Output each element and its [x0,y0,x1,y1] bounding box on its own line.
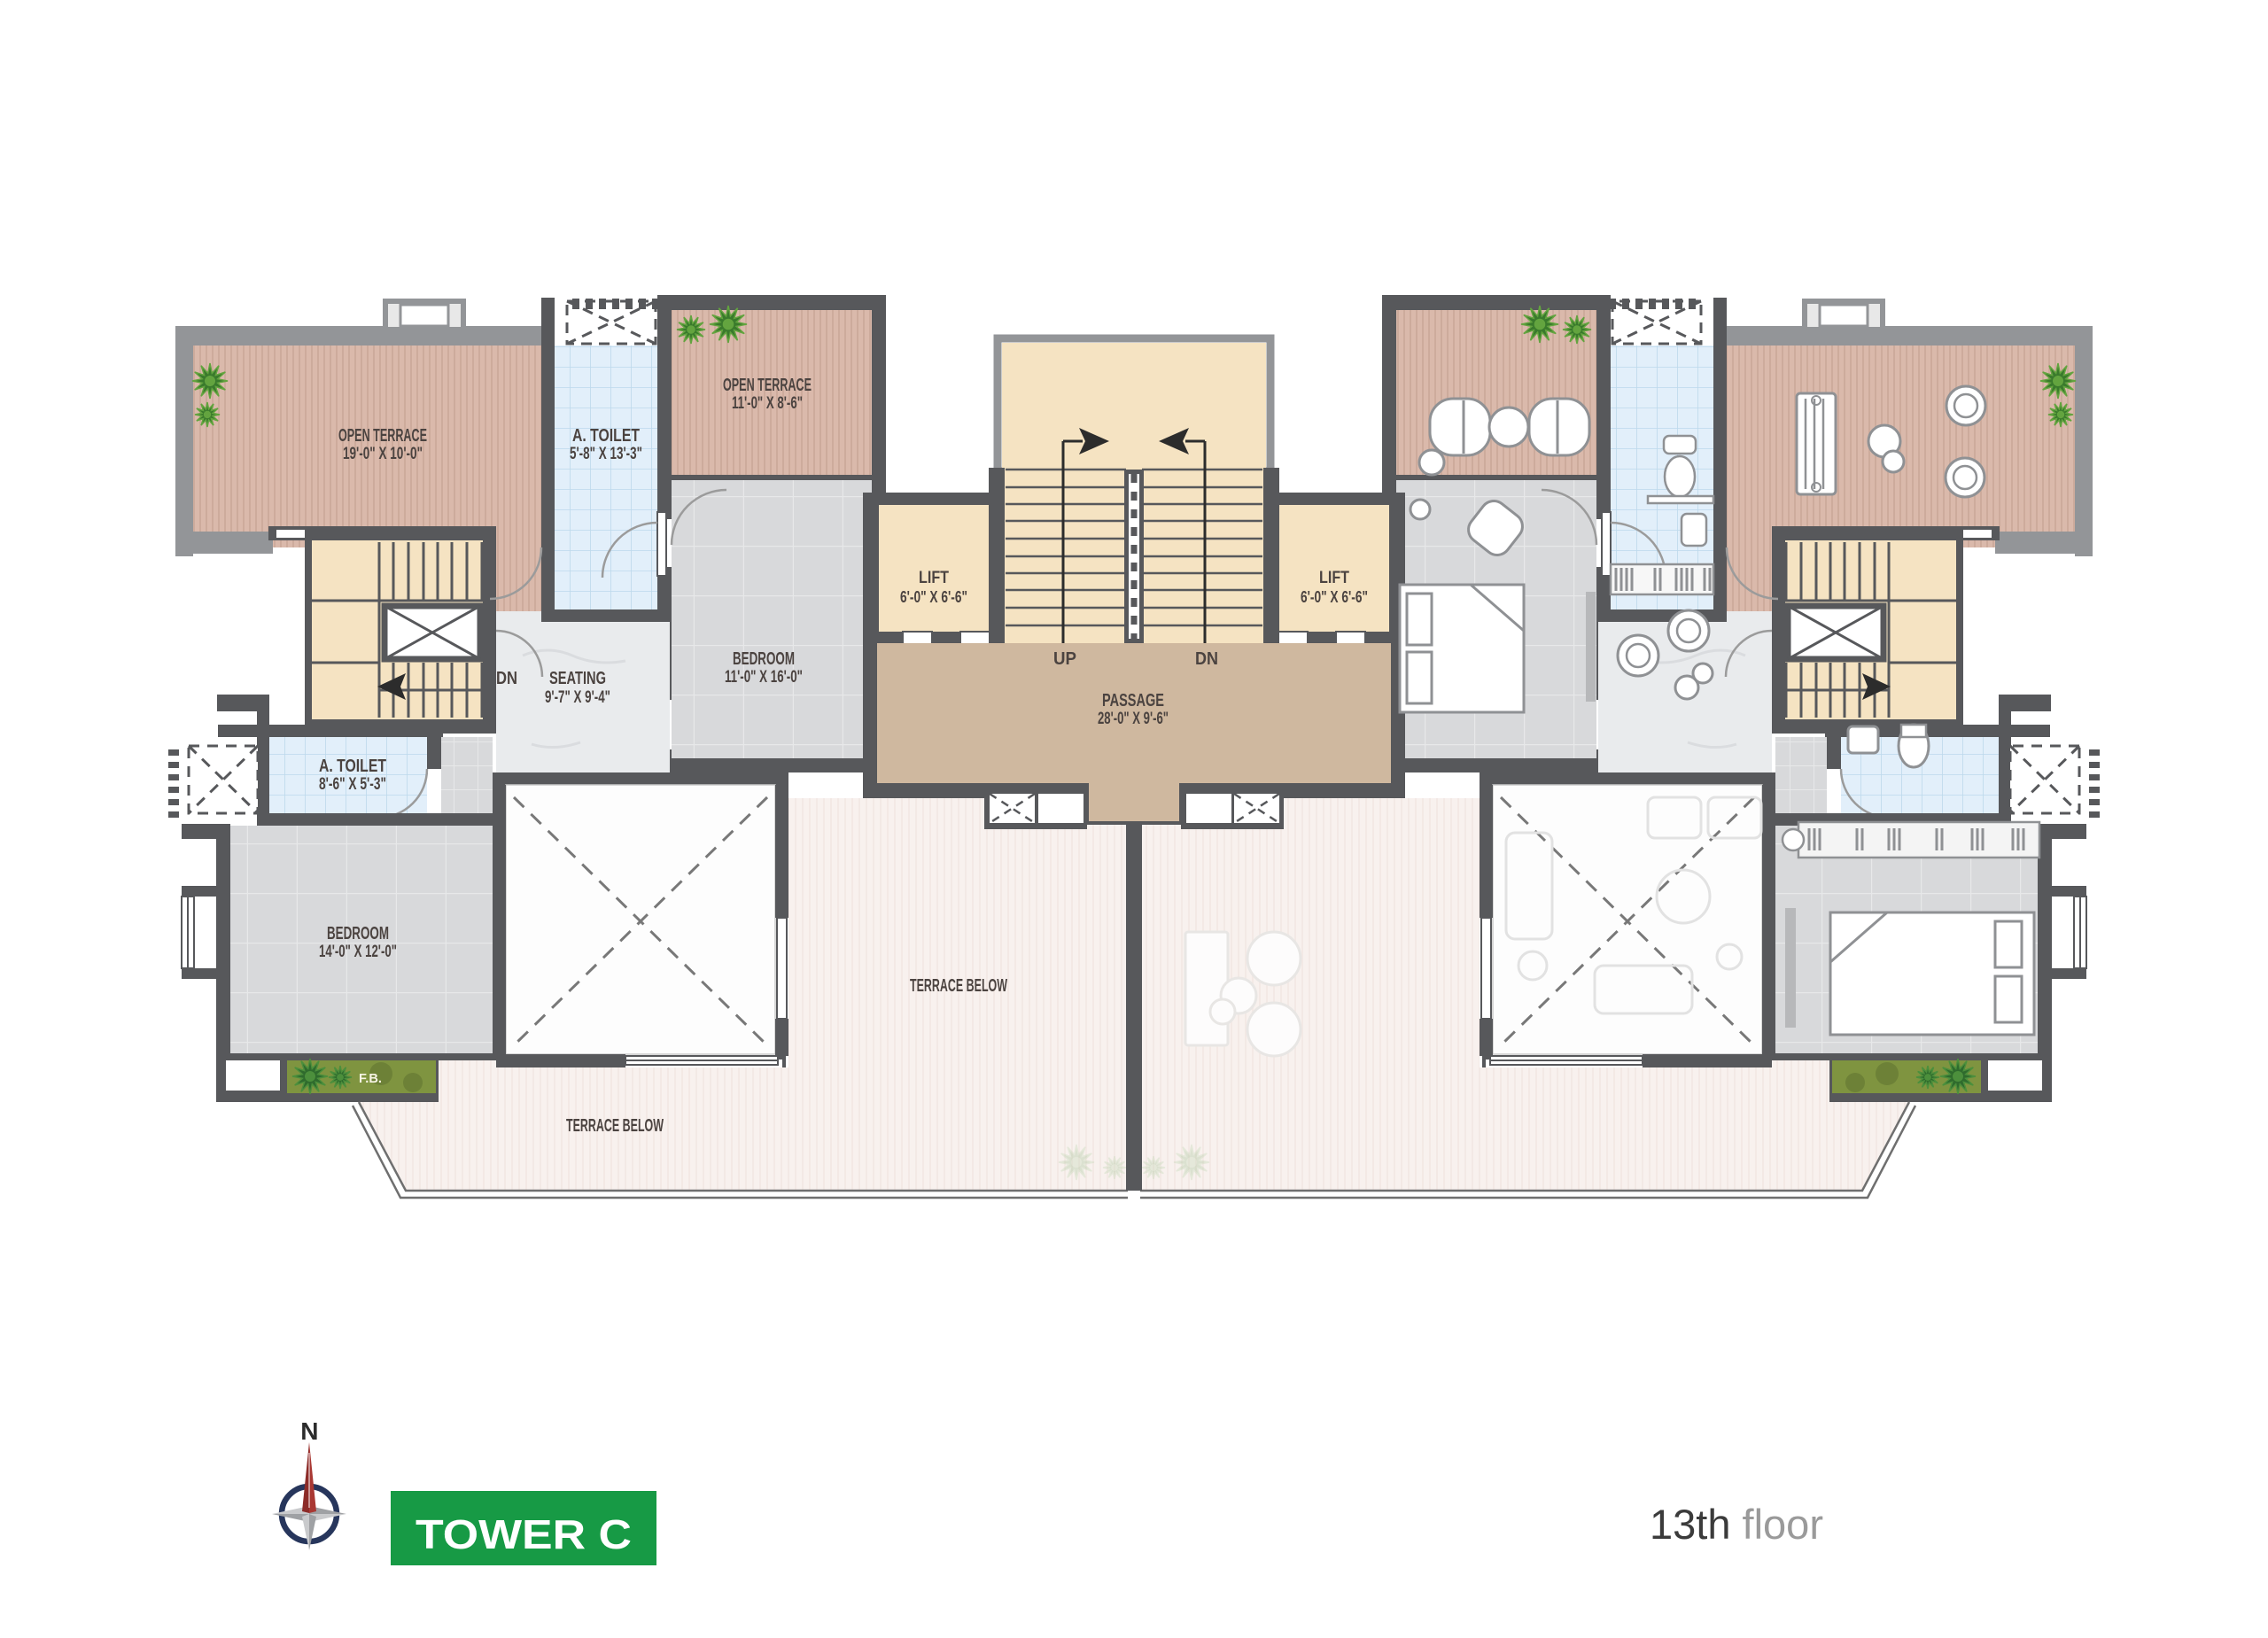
svg-text:F.B.: F.B. [359,1071,382,1086]
svg-text:A. TOILET: A. TOILET [319,757,386,776]
svg-text:5'-8" X 13'-3": 5'-8" X 13'-3" [570,445,642,463]
svg-text:SEATING: SEATING [549,669,606,688]
svg-text:BEDROOM: BEDROOM [327,924,389,943]
svg-text:DN: DN [496,669,517,688]
svg-text:14'-0" X 12'-0": 14'-0" X 12'-0" [319,943,397,961]
svg-text:TERRACE BELOW: TERRACE BELOW [566,1116,664,1136]
svg-text:19'-0" X 10'-0": 19'-0" X 10'-0" [343,445,423,463]
svg-text:N: N [300,1417,317,1445]
svg-text:13th floor: 13th floor [1650,1501,1823,1548]
svg-text:28'-0" X 9'-6": 28'-0" X 9'-6" [1098,710,1169,728]
svg-text:11'-0" X 8'-6": 11'-0" X 8'-6" [732,394,803,413]
svg-text:BEDROOM: BEDROOM [733,649,795,669]
svg-text:TOWER C: TOWER C [416,1511,632,1557]
svg-text:OPEN TERRACE: OPEN TERRACE [338,426,427,446]
svg-text:TERRACE BELOW: TERRACE BELOW [910,976,1007,996]
svg-text:6'-0" X 6'-6": 6'-0" X 6'-6" [1301,588,1368,606]
svg-text:9'-7" X 9'-4": 9'-7" X 9'-4" [545,688,610,707]
svg-text:LIFT: LIFT [1319,569,1349,587]
svg-text:PASSAGE: PASSAGE [1102,691,1164,710]
svg-text:11'-0" X 16'-0": 11'-0" X 16'-0" [725,668,803,687]
svg-text:A. TOILET: A. TOILET [572,426,640,446]
svg-text:LIFT: LIFT [919,569,949,587]
svg-text:8'-6" X 5'-3": 8'-6" X 5'-3" [319,775,386,794]
svg-text:6'-0" X 6'-6": 6'-0" X 6'-6" [900,588,967,606]
svg-text:OPEN TERRACE: OPEN TERRACE [723,376,812,395]
svg-text:DN: DN [1195,649,1218,669]
svg-text:UP: UP [1053,649,1076,669]
